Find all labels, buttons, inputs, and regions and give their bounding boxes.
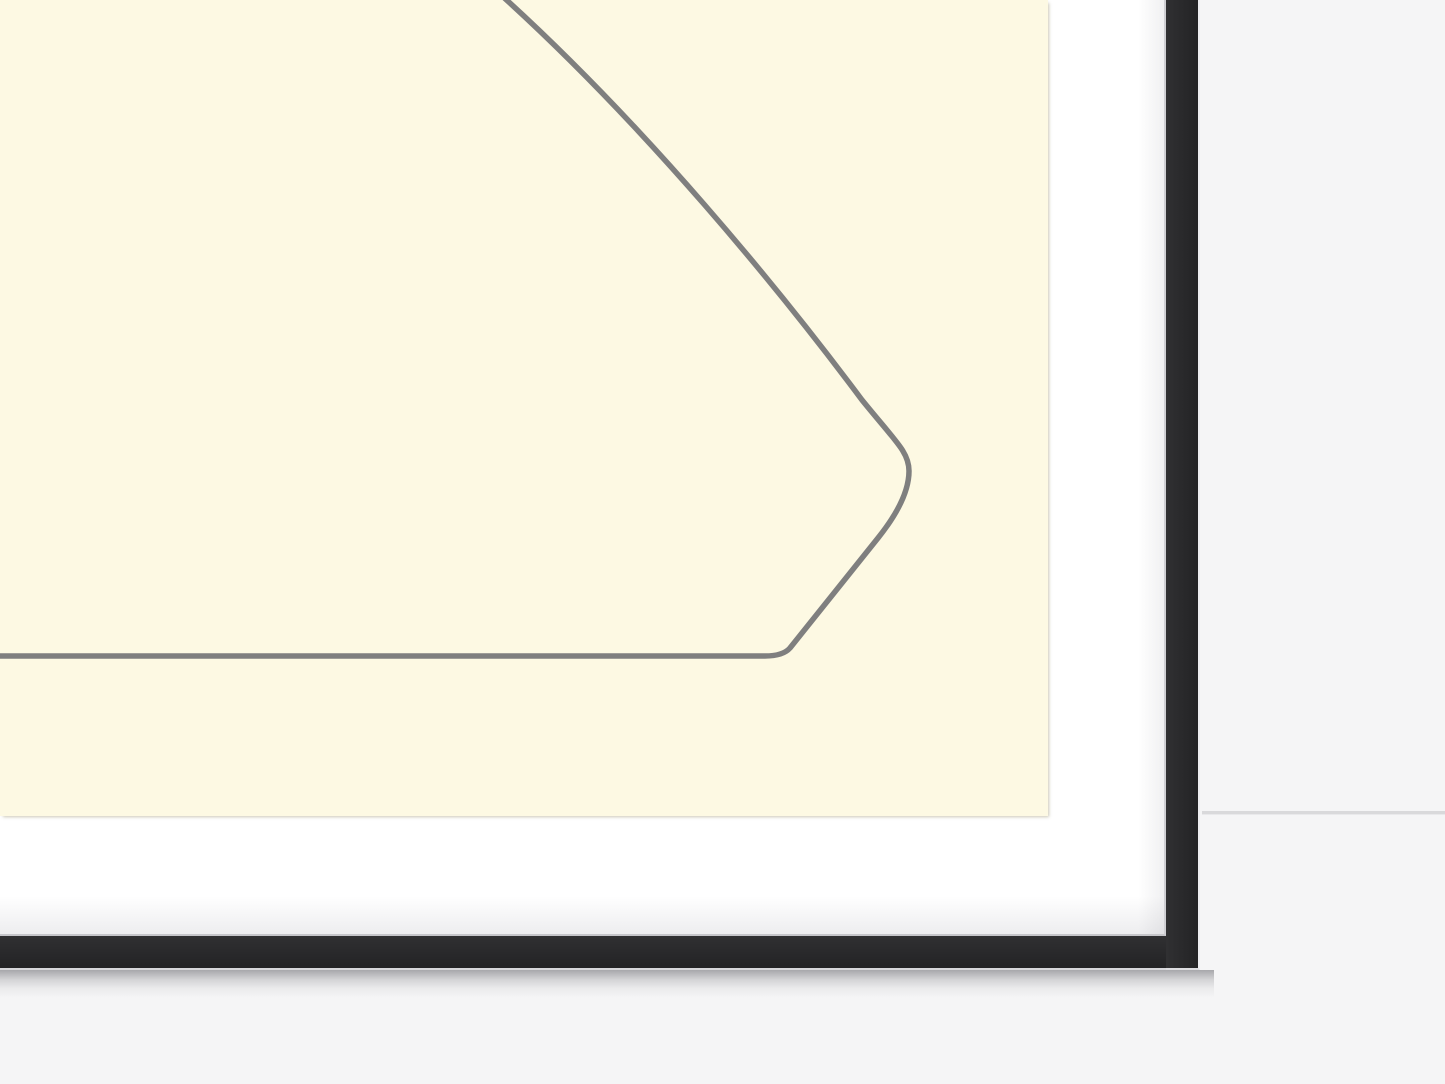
frame-drop-shadow: [0, 970, 1214, 998]
artwork-paper: [0, 0, 1048, 816]
artwork-canvas: [0, 0, 1048, 816]
frame-right-bar: [1166, 0, 1200, 970]
drawn-line: [0, 0, 909, 656]
frame-bottom-bar: [0, 936, 1166, 970]
mat-shadow-right: [1138, 0, 1164, 934]
scene-stage: [0, 0, 1445, 1084]
mat-shadow-bottom: [0, 896, 1164, 934]
wall-divider-line: [1202, 811, 1445, 815]
